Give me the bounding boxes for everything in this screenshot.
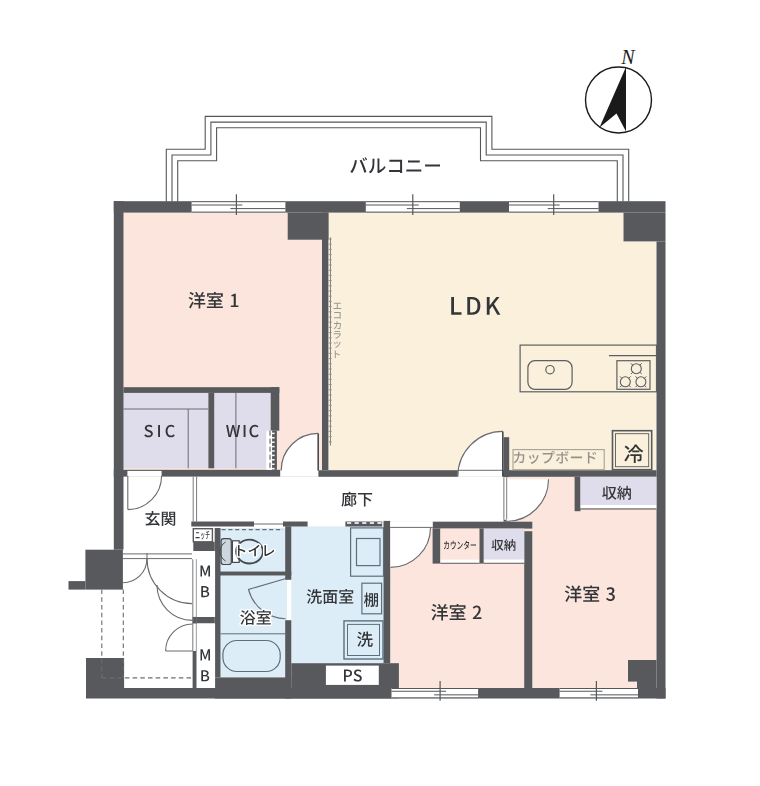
svg-text:N: N: [620, 46, 636, 68]
